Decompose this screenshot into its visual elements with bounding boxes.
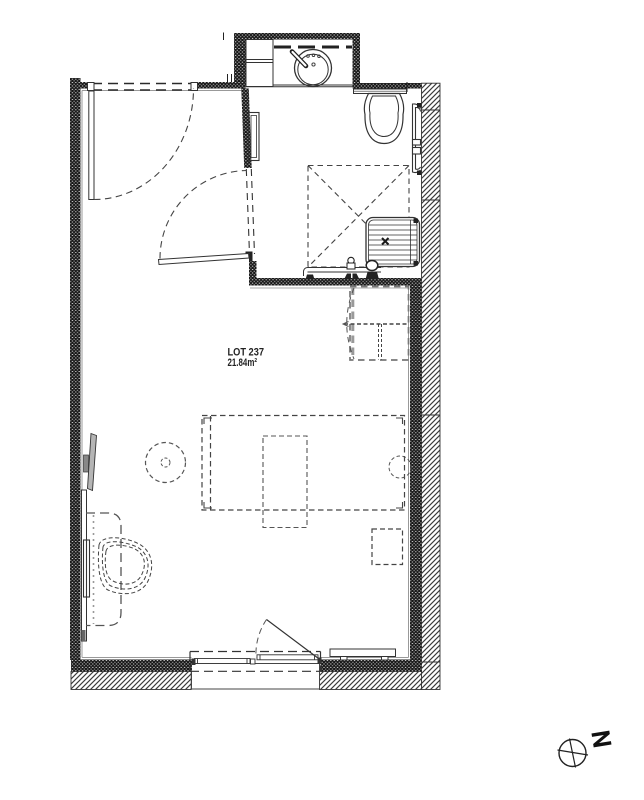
- svg-text:21.84m²: 21.84m²: [228, 357, 258, 369]
